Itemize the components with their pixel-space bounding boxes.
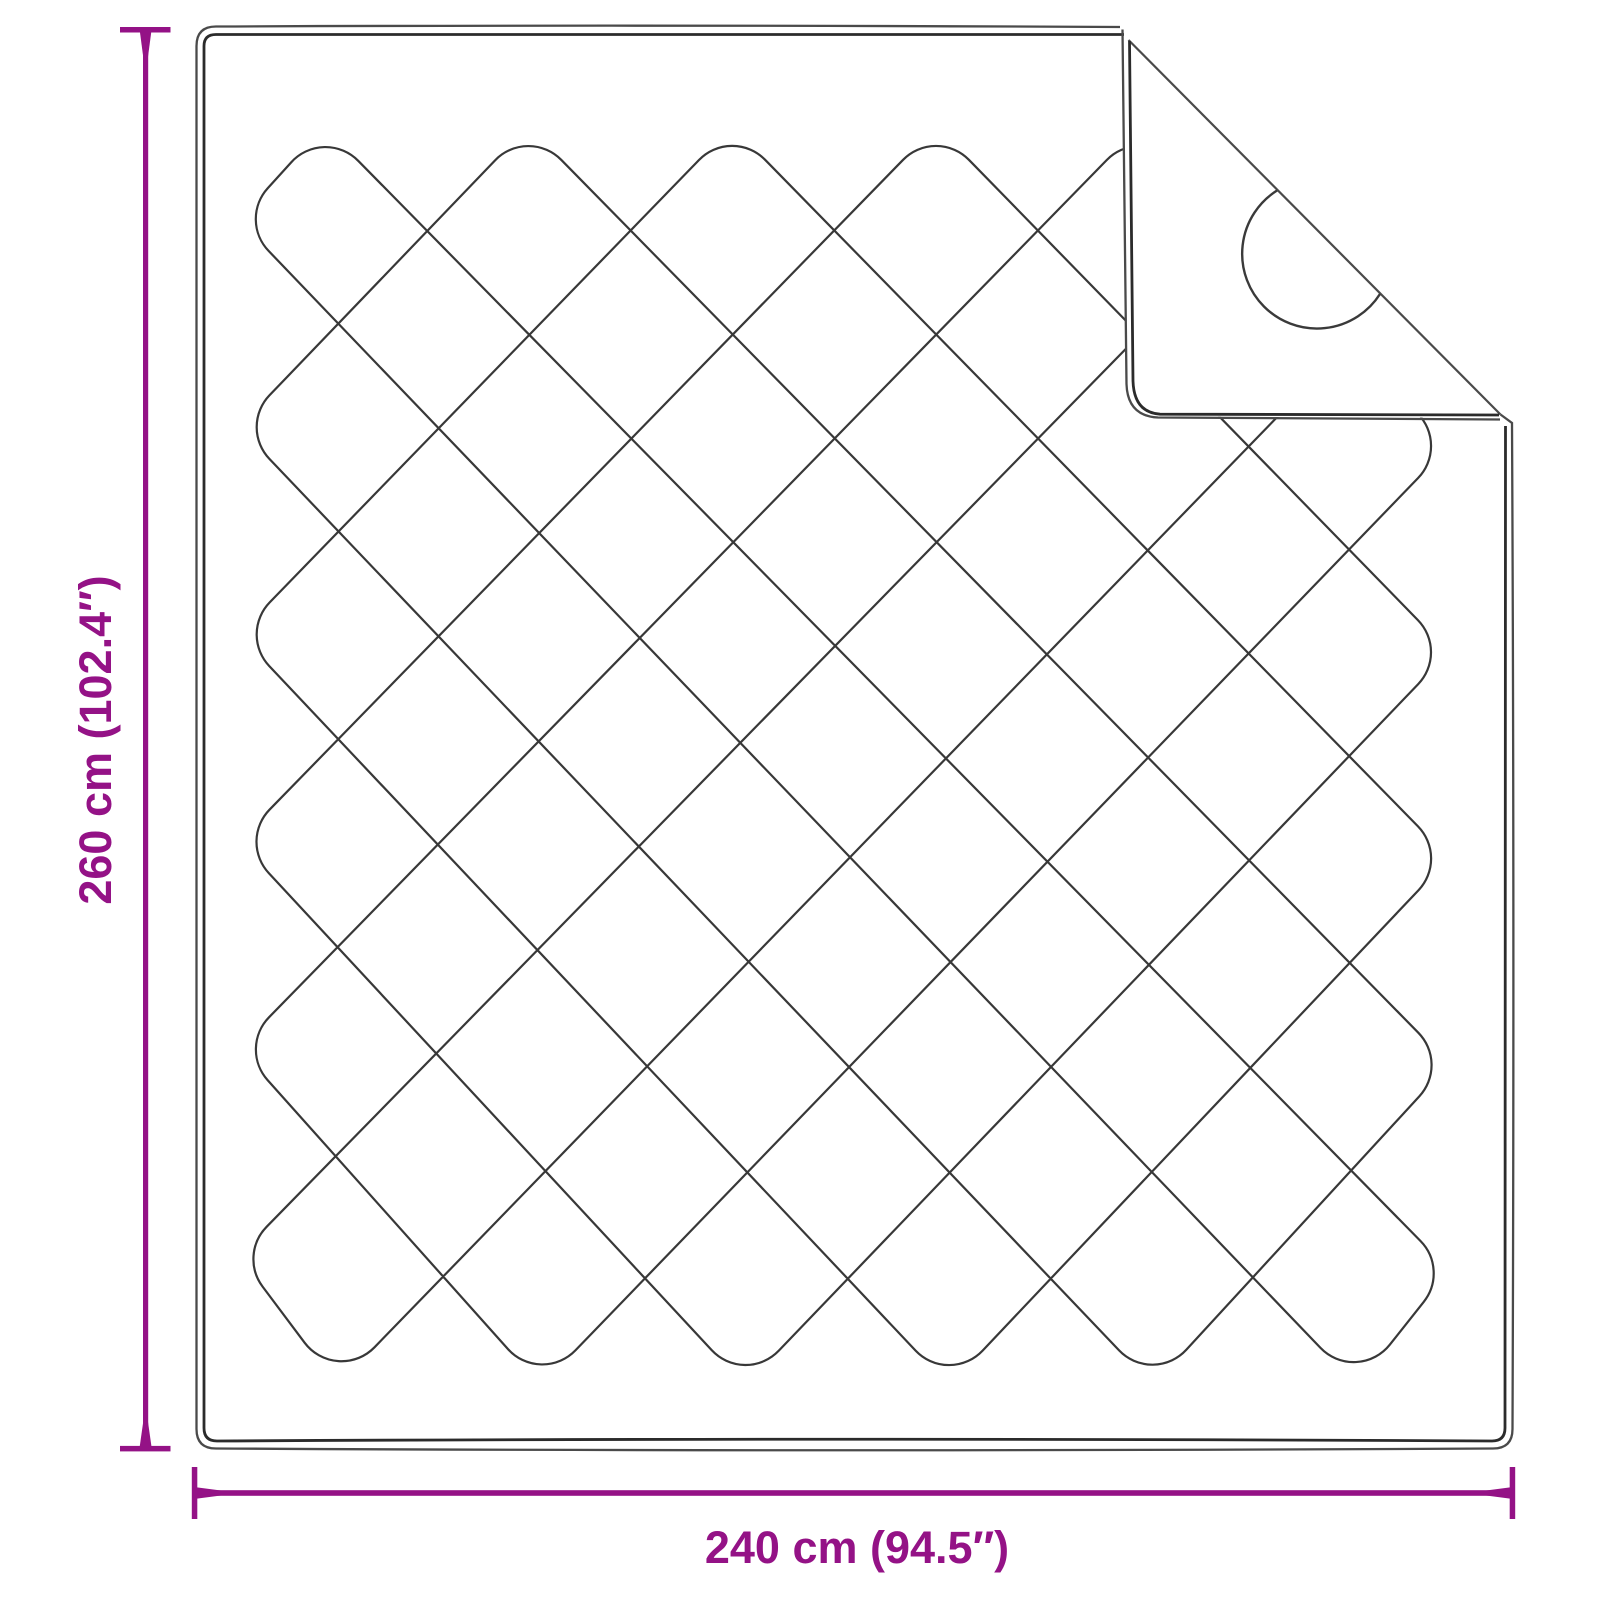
svg-text:240 cm (94.5″): 240 cm (94.5″) <box>705 1522 1009 1573</box>
svg-text:260 cm (102.4″): 260 cm (102.4″) <box>70 575 121 904</box>
